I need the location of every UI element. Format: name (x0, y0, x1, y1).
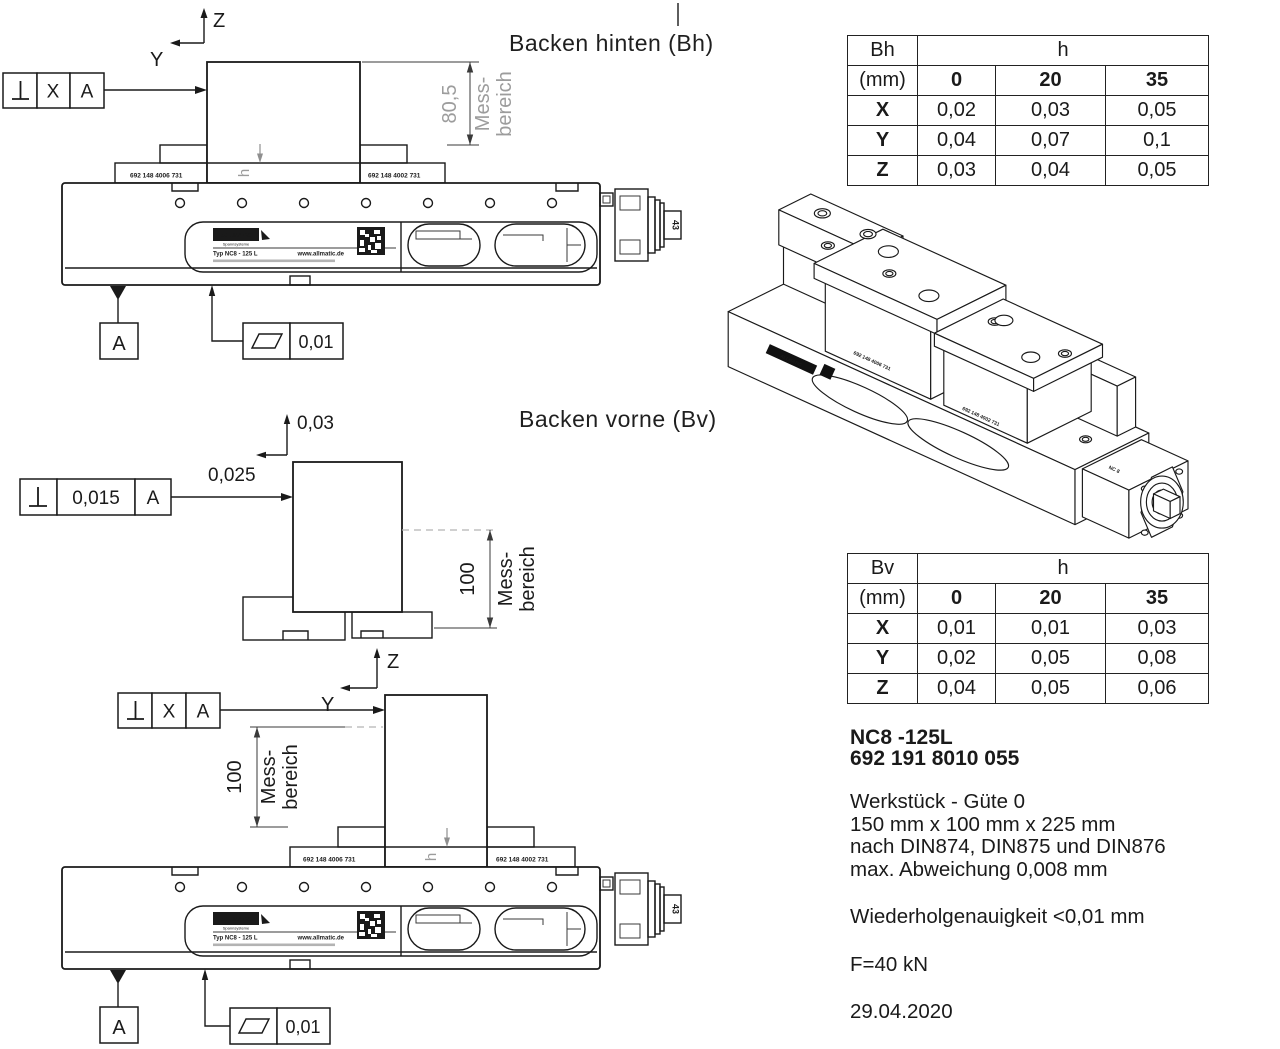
bv-col-20: 20 (996, 584, 1106, 614)
flatness-value-rear: 0,01 (298, 332, 333, 352)
bh-x-35: 0,05 (1106, 96, 1209, 126)
iso-rear-rail (1117, 377, 1135, 436)
dim-80-5-value: 80,5 (439, 85, 461, 124)
flatness-value-bottom: 0,01 (285, 1017, 320, 1037)
bh-z-35: 0,05 (1106, 156, 1209, 186)
spec-line-1: Werkstück - Güte 0 (850, 791, 1280, 814)
datum-a-bottom: A (100, 970, 138, 1043)
dimension-80-5: 80,5 Mess- bereich (362, 62, 516, 145)
bv-corner: Bv (848, 554, 918, 584)
repeatability: Wiederholgenauigkeit <0,01 mm (850, 906, 1280, 929)
front-jaw-drawing: 0,03 0,025 0,015 A (0, 398, 600, 650)
disp-z-value: 0,03 (297, 413, 334, 434)
dim-100-value: 100 (224, 760, 246, 793)
bv-x-35: 0,03 (1106, 614, 1209, 644)
messbereich-line2: bereich (494, 71, 516, 137)
screw-head-icon (886, 271, 893, 275)
bv-row-y: Y (848, 644, 918, 674)
bh-y-35: 0,1 (1106, 126, 1209, 156)
flange-bolt-icon (1141, 530, 1148, 535)
messbereich-line1: Mess- (495, 552, 517, 606)
dimension-100-front: 100 Mess- bereich (402, 530, 539, 628)
bh-unit: (mm) (848, 66, 918, 96)
messbereich-line1: Mess- (472, 77, 494, 131)
bh-x-0: 0,02 (918, 96, 996, 126)
bh-span-header: h (918, 36, 1209, 66)
jaw-left-part-number: 692 148 4006 731 (303, 857, 356, 864)
messbereich-line1: Mess- (258, 750, 280, 804)
tol-datum-label: A (81, 82, 94, 103)
screw-head-icon (824, 243, 831, 247)
flatness-frame-bottom: 0,01 (202, 969, 330, 1044)
bh-z-0: 0,03 (918, 156, 996, 186)
bh-col-35: 35 (1106, 66, 1209, 96)
date: 29.04.2020 (850, 1001, 1280, 1024)
bv-table: Bv h (mm) 0 20 35 X 0,01 0,01 0,03 Y 0,0… (847, 553, 1209, 704)
screw-head-icon (818, 211, 827, 216)
workpiece-front (243, 462, 432, 640)
workpiece-bottom: 692 148 4006 731 692 148 4002 731 (290, 695, 575, 867)
bv-y-20: 0,05 (996, 644, 1106, 674)
bv-row-x: X (848, 614, 918, 644)
bh-col-20: 20 (996, 66, 1106, 96)
axis-z-label: Z (387, 651, 399, 673)
bh-table: Bh h (mm) 0 20 35 X 0,02 0,03 0,05 Y 0,0… (847, 35, 1209, 186)
perp-value: 0,015 (72, 488, 120, 509)
bv-z-20: 0,05 (996, 674, 1106, 704)
jaw-right-part-number: 692 148 4002 731 (368, 173, 421, 180)
bv-col-0: 0 (918, 584, 996, 614)
bore-hole-icon (919, 290, 939, 302)
tol-axis-label: X (163, 702, 176, 723)
screw-head-icon (1061, 351, 1068, 355)
datum-a-label: A (112, 333, 126, 355)
model-name: NC8 -125L (850, 727, 1280, 748)
flange-bolt-icon (1176, 469, 1183, 474)
flatness-frame-rear: 0,01 (209, 285, 343, 359)
bv-row-z: Z (848, 674, 918, 704)
perpendicularity-frame-bottom: X A (118, 693, 385, 728)
datum-a-rear: A (100, 286, 138, 359)
datum-a-label: A (112, 1017, 126, 1039)
rear-jaw-drawing: ALLMATIC Spannsysteme Typ NC8 - 125 L ww… (0, 0, 760, 400)
article-number: 692 191 8010 055 (850, 748, 1280, 769)
jaw-right-part-number: 692 148 4002 731 (496, 857, 549, 864)
bh-y-0: 0,04 (918, 126, 996, 156)
spec-text-block: NC8 -125L 692 191 8010 055 Werkstück - G… (850, 727, 1280, 1024)
bv-unit: (mm) (848, 584, 918, 614)
spec-line-2: 150 mm x 100 mm x 225 mm (850, 814, 1280, 837)
messbereich-line2: bereich (280, 744, 302, 810)
perp-datum: A (147, 488, 160, 509)
workpiece-rear: 692 148 4006 731 692 148 4002 731 (115, 62, 445, 183)
bh-col-0: 0 (918, 66, 996, 96)
h-label-rear: h (236, 169, 253, 177)
disp-y-value: 0,025 (208, 465, 256, 486)
bv-y-0: 0,02 (918, 644, 996, 674)
screw-head-icon (1082, 437, 1089, 441)
bv-x-20: 0,01 (996, 614, 1106, 644)
bore-hole-icon (1022, 352, 1040, 362)
bh-z-20: 0,04 (996, 156, 1106, 186)
h-label-front: h (423, 853, 440, 861)
bv-z-0: 0,04 (918, 674, 996, 704)
bore-hole-icon (995, 315, 1013, 325)
bh-row-z: Z (848, 156, 918, 186)
clamping-force: F=40 kN (850, 954, 1280, 977)
axis-z-label: Z (213, 10, 225, 32)
bv-y-35: 0,08 (1106, 644, 1209, 674)
bh-x-20: 0,03 (996, 96, 1106, 126)
dim-100-value: 100 (457, 562, 479, 595)
bh-y-20: 0,07 (996, 126, 1106, 156)
bore-hole-icon (878, 246, 898, 258)
isometric-view: ALLMATIC692 148 4006 731692 148 4002 731… (715, 183, 1280, 553)
bv-x-0: 0,01 (918, 614, 996, 644)
dimension-100-bottom: 100 Mess- bereich (224, 727, 383, 827)
bh-corner: Bh (848, 36, 918, 66)
screw-head-icon (864, 231, 873, 236)
drawing-sheet: Backen hinten (Bh) (0, 0, 1280, 1049)
axis-y-label: Y (321, 694, 334, 716)
messbereich-line2: bereich (517, 546, 539, 612)
axis-y-label: Y (150, 49, 163, 71)
bh-row-y: Y (848, 126, 918, 156)
tol-datum-label: A (197, 702, 210, 723)
bv-span-header: h (918, 554, 1209, 584)
bh-row-x: X (848, 96, 918, 126)
bv-col-35: 35 (1106, 584, 1209, 614)
bv-z-35: 0,06 (1106, 674, 1209, 704)
perpendicularity-frame-rear: X A (3, 73, 207, 108)
tol-axis-label: X (47, 82, 60, 103)
jaw-left-part-number: 692 148 4006 731 (130, 173, 183, 180)
front-side-drawing: Z Y X A 100 Mess- bereich (0, 645, 760, 1049)
spec-line-3: nach DIN874, DIN875 und DIN876 (850, 836, 1280, 859)
spec-line-4: max. Abweichung 0,008 mm (850, 859, 1280, 882)
